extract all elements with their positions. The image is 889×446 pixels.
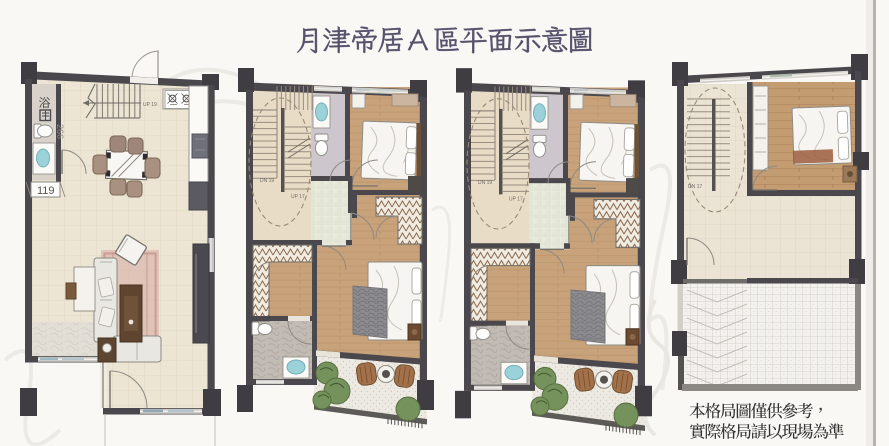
svg-text:119: 119	[37, 185, 55, 197]
svg-text:UP 17: UP 17	[509, 196, 523, 202]
svg-text:DN 17: DN 17	[688, 184, 702, 190]
svg-text:DN 19: DN 19	[478, 180, 492, 186]
svg-text:UP 19: UP 19	[143, 102, 157, 108]
svg-text:DN 19: DN 19	[260, 178, 274, 184]
svg-text:266: 266	[55, 124, 65, 139]
svg-text:UP 17: UP 17	[291, 194, 305, 200]
